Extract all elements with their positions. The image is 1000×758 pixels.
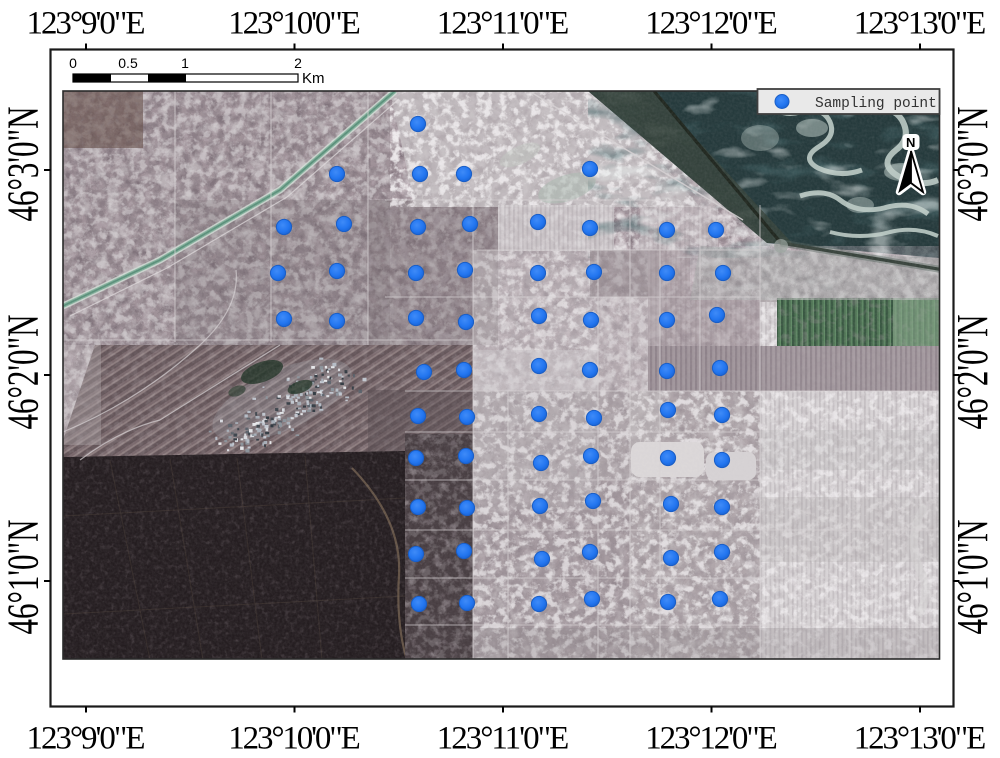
svg-text:Km: Km [302, 70, 325, 87]
svg-text:46°2'0"N: 46°2'0"N [949, 314, 998, 429]
svg-text:0: 0 [69, 55, 77, 71]
svg-text:46°3'0"N: 46°3'0"N [0, 106, 48, 221]
svg-text:0.5: 0.5 [118, 55, 138, 71]
svg-text:123°9'0"E: 123°9'0"E [27, 6, 146, 42]
svg-text:46°3'0"N: 46°3'0"N [949, 106, 998, 221]
svg-text:46°2'0"N: 46°2'0"N [0, 314, 48, 429]
svg-text:46°1'0"N: 46°1'0"N [0, 519, 48, 634]
svg-text:1: 1 [181, 55, 189, 71]
svg-text:123°11'0"E: 123°11'0"E [437, 6, 570, 42]
svg-text:2: 2 [294, 55, 302, 71]
svg-text:123°10'0"E: 123°10'0"E [228, 721, 361, 757]
svg-text:123°12'0"E: 123°12'0"E [645, 721, 778, 757]
svg-text:123°10'0"E: 123°10'0"E [228, 6, 361, 42]
svg-text:123°9'0"E: 123°9'0"E [27, 721, 146, 757]
svg-text:123°13'0"E: 123°13'0"E [854, 6, 987, 42]
svg-text:N: N [906, 135, 915, 150]
svg-text:123°13'0"E: 123°13'0"E [854, 721, 987, 757]
svg-text:Sampling point: Sampling point [815, 96, 937, 112]
svg-text:123°11'0"E: 123°11'0"E [437, 721, 570, 757]
svg-text:46°1'0"N: 46°1'0"N [949, 519, 998, 634]
svg-text:123°12'0"E: 123°12'0"E [645, 6, 778, 42]
